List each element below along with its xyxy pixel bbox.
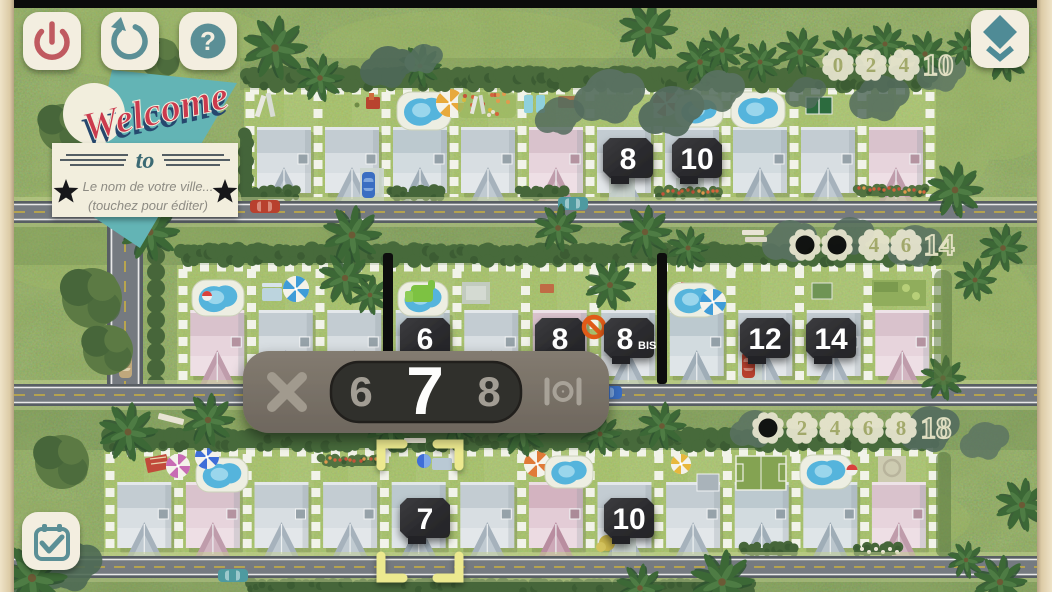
svg-text:14: 14 [814, 323, 848, 356]
svg-text:8: 8 [620, 143, 637, 176]
svg-text:7: 7 [406, 353, 444, 429]
svg-text:to: to [136, 148, 155, 174]
svg-text:2: 2 [797, 416, 808, 440]
svg-text:BIS: BIS [638, 340, 656, 352]
svg-text:?: ? [200, 26, 216, 56]
svg-text:6: 6 [863, 416, 874, 440]
svg-text:7: 7 [417, 503, 434, 536]
svg-text:10: 10 [923, 47, 954, 82]
svg-text:14: 14 [924, 227, 955, 262]
svg-text:10: 10 [612, 503, 645, 536]
svg-text:18: 18 [921, 410, 952, 445]
svg-text:4: 4 [869, 233, 880, 257]
svg-text:Le nom de votre ville...: Le nom de votre ville... [83, 179, 214, 194]
svg-text:4: 4 [830, 416, 841, 440]
svg-text:4: 4 [899, 53, 910, 77]
svg-text:12: 12 [748, 323, 781, 356]
svg-text:8: 8 [617, 323, 634, 356]
svg-text:0: 0 [833, 53, 844, 77]
svg-text:6: 6 [349, 368, 372, 415]
svg-text:8: 8 [896, 416, 907, 440]
svg-text:10: 10 [680, 143, 713, 176]
svg-text:6: 6 [901, 233, 912, 257]
svg-text:(touchez pour éditer): (touchez pour éditer) [88, 198, 208, 213]
svg-text:2: 2 [866, 53, 877, 77]
svg-text:8: 8 [477, 368, 500, 415]
